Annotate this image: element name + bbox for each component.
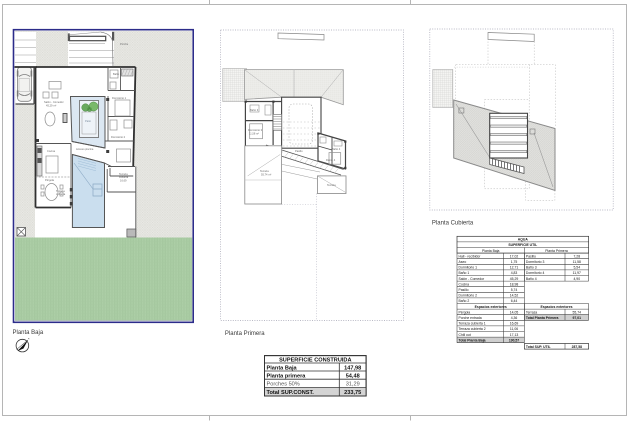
svg-text:Baño 2: Baño 2 — [459, 299, 470, 303]
svg-text:Planta Baja: Planta Baja — [482, 249, 499, 253]
svg-text:Dorm. 4: Dorm. 4 — [326, 158, 336, 162]
svg-text:Patio: Patio — [85, 119, 91, 123]
svg-text:Pérgola: Pérgola — [45, 178, 54, 182]
svg-text:11,06: 11,06 — [510, 327, 518, 331]
svg-text:Planta Baja: Planta Baja — [13, 330, 44, 336]
svg-text:45,29: 45,29 — [510, 277, 519, 281]
svg-text:Terraza cubierta 1: Terraza cubierta 1 — [459, 322, 486, 326]
svg-text:Terraza: Terraza — [260, 169, 269, 173]
svg-text:Salón - Comedor: Salón - Comedor — [459, 277, 486, 281]
svg-text:45,29 m²: 45,29 m² — [46, 104, 56, 108]
svg-text:Chill out: Chill out — [459, 333, 471, 337]
svg-text:11,58: 11,58 — [573, 260, 581, 264]
svg-text:Planta Baja: Planta Baja — [267, 365, 298, 371]
svg-text:Baño 3: Baño 3 — [526, 266, 537, 270]
svg-text:Total SUP.CONST.: Total SUP.CONST. — [267, 390, 315, 396]
svg-text:11,58 m²: 11,58 m² — [249, 132, 259, 136]
svg-text:233,75: 233,75 — [344, 390, 361, 396]
svg-text:Dormitorio 4: Dormitorio 4 — [526, 271, 545, 275]
svg-text:55,74: 55,74 — [573, 310, 582, 314]
svg-text:Pérgola: Pérgola — [459, 310, 471, 314]
svg-text:Aseo: Aseo — [459, 260, 467, 264]
svg-text:14,52: 14,52 — [510, 294, 519, 298]
svg-text:17,13: 17,13 — [510, 333, 519, 337]
svg-text:18,98: 18,98 — [510, 282, 519, 286]
svg-text:Terraza: Terraza — [526, 310, 537, 314]
svg-text:Espacios exteriores: Espacios exteriores — [540, 305, 572, 309]
svg-text:5,54: 5,54 — [573, 266, 580, 270]
svg-text:Dormitorio 3: Dormitorio 3 — [248, 128, 263, 132]
svg-text:Pasillo: Pasillo — [526, 254, 536, 258]
svg-text:Dormitorio 1: Dormitorio 1 — [112, 96, 127, 100]
svg-text:7,28: 7,28 — [573, 254, 580, 258]
svg-text:1,75: 1,75 — [511, 260, 518, 264]
svg-text:16,69: 16,69 — [120, 178, 127, 182]
svg-text:14,05: 14,05 — [510, 310, 519, 314]
svg-text:17,02: 17,02 — [510, 254, 519, 258]
svg-text:Total Planta Baja: Total Planta Baja — [459, 338, 486, 342]
svg-text:Acceso piscina: Acceso piscina — [76, 147, 94, 151]
svg-text:4,83: 4,83 — [511, 271, 518, 275]
svg-text:Terraza: Terraza — [327, 183, 336, 187]
svg-text:Cocina: Cocina — [47, 149, 56, 153]
svg-text:6,44: 6,44 — [511, 299, 518, 303]
svg-text:97,01: 97,01 — [573, 316, 582, 320]
svg-text:11,97: 11,97 — [573, 271, 581, 275]
svg-text:Dormitorio 2: Dormitorio 2 — [459, 294, 478, 298]
svg-text:Pasillo: Pasillo — [459, 288, 469, 292]
svg-text:Baño 4: Baño 4 — [332, 147, 341, 151]
svg-text:Espacios exteriores: Espacios exteriores — [475, 305, 507, 309]
svg-text:Hall - recibidor: Hall - recibidor — [459, 254, 482, 258]
svg-text:4,36: 4,36 — [511, 316, 518, 320]
svg-text:190,57: 190,57 — [509, 338, 519, 342]
svg-text:147,98: 147,98 — [344, 365, 361, 371]
svg-text:SUPERFICIE CONSTRUIDA: SUPERFICIE CONSTRUIDA — [279, 358, 351, 364]
svg-text:31,29: 31,29 — [346, 382, 360, 388]
svg-text:Planta Primera: Planta Primera — [545, 249, 568, 253]
svg-text:4,90: 4,90 — [573, 277, 580, 281]
svg-text:16,69: 16,69 — [510, 322, 519, 326]
svg-text:Baño 4: Baño 4 — [526, 277, 537, 281]
svg-text:Cocina: Cocina — [459, 282, 470, 286]
svg-text:Planta Primera: Planta Primera — [225, 331, 265, 337]
svg-text:AQUA: AQUA — [518, 238, 529, 242]
svg-text:Salón - Comedor: Salón - Comedor — [44, 100, 64, 104]
svg-text:Baño 3: Baño 3 — [250, 108, 259, 112]
svg-text:Dormitorio 1: Dormitorio 1 — [459, 266, 478, 270]
svg-text:Baño 1: Baño 1 — [459, 271, 470, 275]
svg-text:Planta primera: Planta primera — [267, 373, 307, 379]
svg-text:Total SUP. UTIL: Total SUP. UTIL — [526, 345, 551, 349]
svg-text:5,74: 5,74 — [511, 288, 518, 292]
svg-text:287,58: 287,58 — [572, 345, 582, 349]
svg-text:Total Planta Primera: Total Planta Primera — [526, 316, 559, 320]
svg-text:Porche entrada: Porche entrada — [459, 316, 482, 320]
svg-text:12,71: 12,71 — [510, 266, 519, 270]
svg-text:55,74 m²: 55,74 m² — [261, 173, 271, 177]
svg-text:Pasillo: Pasillo — [295, 149, 303, 153]
svg-text:Terraza cubierta 2: Terraza cubierta 2 — [459, 327, 486, 331]
svg-text:Planta Cubierta: Planta Cubierta — [432, 221, 474, 227]
svg-text:Dormitorio 3: Dormitorio 3 — [526, 260, 545, 264]
svg-text:Porche: Porche — [120, 42, 129, 46]
svg-text:SUPERFICIE UTIL: SUPERFICIE UTIL — [508, 243, 537, 247]
svg-text:Dormitorio 2: Dormitorio 2 — [111, 135, 126, 139]
svg-text:Porches 50%: Porches 50% — [267, 382, 300, 388]
svg-text:54,48: 54,48 — [346, 373, 360, 379]
